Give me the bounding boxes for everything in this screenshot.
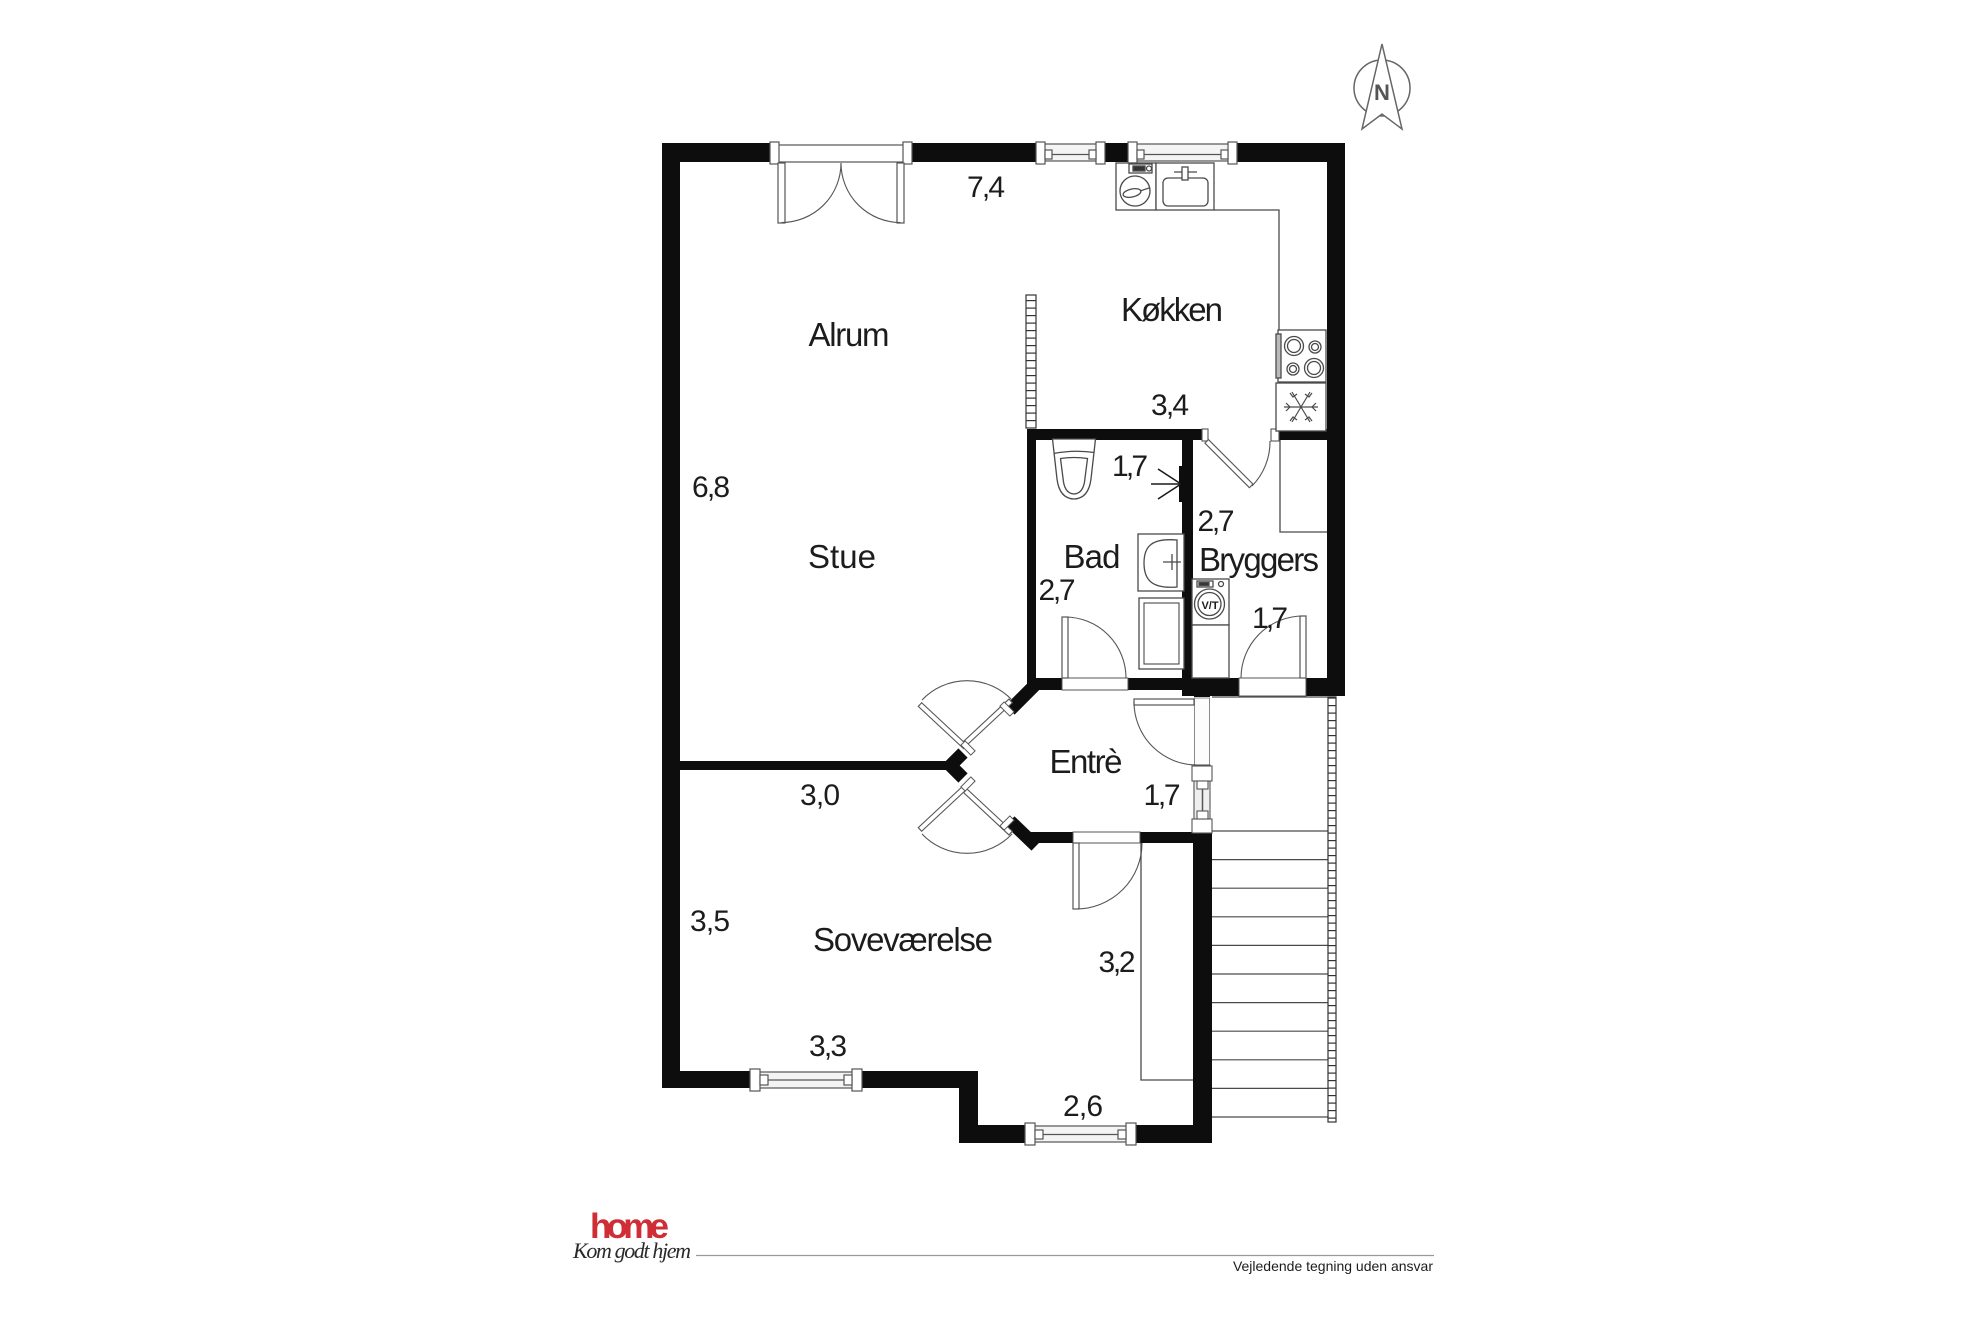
svg-text:3,0: 3,0	[800, 779, 840, 812]
svg-text:1,7: 1,7	[1252, 602, 1288, 635]
svg-text:3,2: 3,2	[1099, 946, 1136, 979]
svg-text:Soveværelse: Soveværelse	[813, 921, 993, 958]
svg-text:3,5: 3,5	[690, 905, 730, 938]
svg-text:1,7: 1,7	[1144, 779, 1181, 812]
svg-text:Bryggers: Bryggers	[1199, 541, 1319, 578]
svg-text:3,3: 3,3	[809, 1030, 847, 1063]
svg-text:Vejledende tegning uden ansvar: Vejledende tegning uden ansvar	[1233, 1258, 1433, 1274]
svg-text:2,7: 2,7	[1198, 505, 1235, 538]
svg-text:7,4: 7,4	[967, 171, 1005, 204]
svg-text:Entrè: Entrè	[1050, 743, 1123, 780]
svg-text:Stue: Stue	[808, 538, 876, 575]
svg-text:V/T: V/T	[1201, 600, 1218, 612]
svg-text:2,7: 2,7	[1039, 574, 1076, 607]
svg-text:Køkken: Køkken	[1121, 291, 1223, 328]
svg-text:3,4: 3,4	[1151, 389, 1189, 422]
svg-text:Bad: Bad	[1064, 538, 1121, 575]
svg-text:1,7: 1,7	[1112, 450, 1148, 483]
svg-text:2,6: 2,6	[1063, 1090, 1103, 1123]
svg-text:Kom godt hjem: Kom godt hjem	[572, 1238, 691, 1263]
svg-text:Alrum: Alrum	[809, 316, 890, 353]
svg-text:N: N	[1374, 80, 1390, 105]
svg-text:6,8: 6,8	[692, 471, 730, 504]
